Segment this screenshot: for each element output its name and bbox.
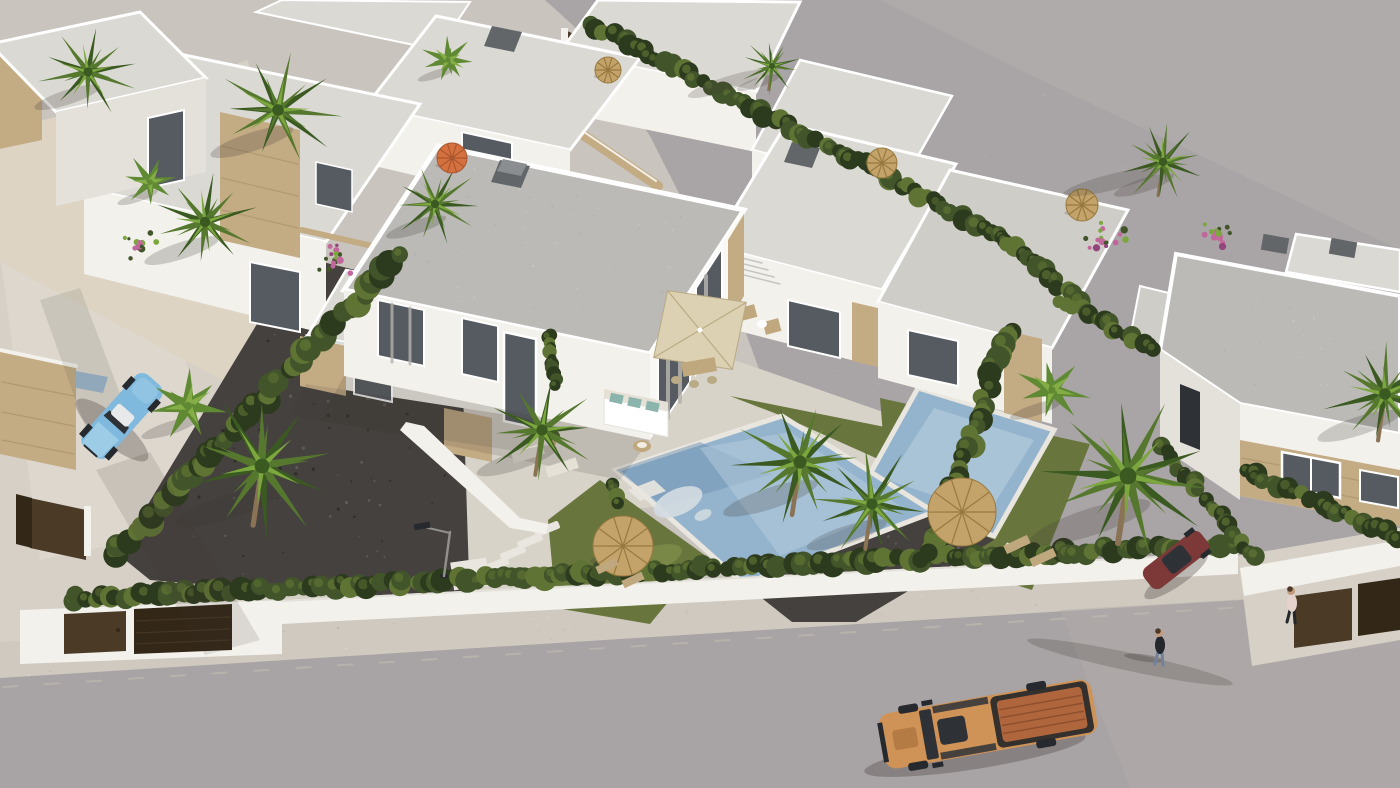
curb-joint-line	[253, 670, 269, 671]
hedge-right-garden	[1391, 533, 1399, 541]
curb-joint-line	[1134, 613, 1150, 614]
sidewalk-texture	[530, 618, 532, 620]
hedge-front-perimeter	[80, 593, 87, 600]
bougainvillea	[1093, 244, 1100, 251]
roof-texture	[1388, 355, 1390, 357]
bougainvillea	[336, 257, 343, 264]
gravel-texture	[378, 504, 381, 507]
hedge-left-boundary	[268, 372, 279, 383]
roof-texture	[1220, 322, 1222, 324]
sidewalk-texture	[564, 629, 566, 631]
sidewalk-texture	[394, 623, 395, 624]
roof-texture	[645, 286, 646, 287]
roof-texture	[533, 308, 535, 310]
gravel-texture	[242, 555, 244, 557]
roof-texture	[665, 221, 667, 223]
straw-umbrella-pool	[960, 510, 964, 514]
sidewalk-texture	[306, 651, 307, 652]
roof-texture	[473, 168, 475, 170]
sidewalk-texture	[977, 597, 978, 598]
pedestrian-gate	[64, 611, 126, 654]
gravel-pool-texture	[957, 546, 960, 549]
pedestrian-walking	[1162, 652, 1163, 665]
hedge-back-boundary	[943, 206, 951, 214]
sidewalk-texture	[568, 626, 569, 627]
gravel-texture	[274, 334, 276, 336]
roof-texture	[484, 239, 486, 241]
gravel-texture	[368, 499, 371, 502]
roof-texture	[1256, 300, 1258, 302]
roof-texture	[669, 266, 671, 268]
hedge-plot-divider	[995, 335, 1006, 346]
palm-tree	[83, 67, 92, 76]
bougainvillea	[1104, 241, 1108, 245]
roof-texture	[556, 242, 558, 244]
curb-joint-line	[1176, 610, 1192, 611]
roof-texture	[576, 196, 578, 198]
bougainvillea	[1113, 240, 1119, 246]
hedge-back-boundary	[687, 73, 695, 81]
sidewalk-texture	[724, 603, 726, 605]
roof-texture	[498, 212, 499, 213]
roof-texture	[1334, 340, 1336, 342]
curb-joint-line	[212, 672, 228, 673]
gravel-texture	[242, 573, 244, 575]
gravel-texture	[289, 395, 292, 398]
roof-texture	[457, 301, 459, 303]
bougainvillea	[128, 256, 132, 260]
gravel-texture	[282, 552, 284, 554]
palm-tree-right	[1120, 468, 1137, 485]
bougainvillea	[1219, 243, 1226, 250]
roof-texture	[1250, 359, 1251, 360]
gravel-texture	[329, 515, 332, 518]
straw-umbrella	[880, 161, 884, 165]
sidewalk-texture	[548, 617, 550, 619]
roof-texture	[467, 196, 469, 198]
roof-texture	[1301, 356, 1303, 358]
orange-pickup-truck	[937, 715, 969, 745]
orange-umbrella	[450, 156, 454, 160]
bougainvillea	[328, 244, 333, 249]
bougainvillea	[140, 245, 144, 249]
gravel-texture	[197, 496, 200, 499]
sidewalk-texture	[550, 638, 552, 640]
roof-texture	[1286, 363, 1287, 364]
roof-texture	[576, 306, 577, 307]
straw-umbrella	[606, 68, 610, 72]
gravel-texture	[431, 503, 433, 505]
dining-chair	[671, 376, 681, 384]
roof-texture	[1339, 332, 1340, 333]
sidewalk-texture	[981, 598, 982, 599]
hedge-plot-divider	[963, 427, 971, 435]
hedge-rightvilla-side	[1201, 494, 1208, 501]
sidewalk-texture	[921, 595, 923, 597]
sidewalk-texture	[467, 641, 468, 642]
roof-texture	[638, 227, 640, 229]
lot-texture	[833, 370, 835, 372]
curb-joint-line	[966, 624, 982, 625]
roof-texture	[1340, 353, 1341, 354]
roof-texture	[593, 214, 594, 215]
bougainvillea	[326, 267, 331, 272]
hedge-plot-divider	[919, 543, 937, 561]
palm-tree	[200, 217, 210, 227]
roof-texture	[575, 246, 576, 247]
hedge-front-perimeter	[735, 560, 743, 568]
hedge-front-perimeter	[1086, 546, 1093, 553]
gravel-texture	[408, 447, 410, 449]
hedge-front-perimeter	[394, 573, 403, 582]
person-at-gate	[1287, 586, 1293, 592]
hedge-front-perimeter	[556, 565, 564, 573]
roof-texture	[523, 228, 525, 230]
hedge-plot-divider	[956, 450, 964, 458]
curb-joint-line	[2, 686, 18, 687]
roof-texture	[478, 168, 479, 169]
hedge-front-perimeter	[954, 551, 961, 558]
roof-texture	[1265, 330, 1266, 331]
roof-texture	[680, 216, 682, 218]
banana-plant	[147, 179, 153, 185]
bougainvillea	[348, 270, 353, 275]
gravel-texture	[371, 478, 373, 480]
roof-texture	[1348, 369, 1349, 370]
gravel-pool-texture	[881, 542, 882, 543]
roof-texture	[1320, 384, 1322, 386]
sidewalk-texture	[28, 674, 30, 676]
banana-plant	[184, 402, 192, 410]
coffee-table-tray	[637, 442, 647, 448]
sidewalk-texture	[881, 614, 883, 616]
roof-texture	[1319, 348, 1321, 350]
roof-texture	[1371, 347, 1373, 349]
villa-window	[908, 330, 958, 386]
gravel-pool-texture	[901, 528, 902, 529]
hedge-front-perimeter	[139, 587, 148, 596]
curb-joint-line	[337, 664, 353, 665]
palm-tree	[431, 200, 439, 208]
terrace-parasol	[698, 328, 703, 333]
hedge-right-garden	[1330, 506, 1338, 514]
gravel-texture	[389, 479, 391, 481]
roof-texture	[576, 287, 578, 289]
roof-texture	[609, 267, 610, 268]
gravel-pool-texture	[895, 543, 897, 545]
hedge-back-boundary	[1050, 274, 1057, 281]
sidewalk-texture	[1191, 582, 1192, 583]
hedge-back-boundary	[596, 27, 603, 34]
villa-window	[316, 162, 352, 212]
curb-joint-line	[882, 629, 898, 630]
roof-texture	[1248, 308, 1249, 309]
straw-umbrella	[1080, 203, 1084, 207]
hedge-front-perimeter	[314, 578, 323, 587]
bougainvillea	[324, 257, 328, 261]
roof-texture	[552, 205, 554, 207]
lot-texture	[1121, 165, 1124, 168]
hedge-front-perimeter	[272, 585, 280, 593]
bougainvillea	[127, 237, 130, 240]
gravel-texture	[221, 429, 224, 432]
patio-side-table	[757, 320, 767, 328]
sidewalk-texture	[1039, 600, 1041, 602]
roof-texture	[571, 213, 572, 214]
roof-texture	[445, 301, 446, 302]
bush-pool-corner	[613, 499, 619, 505]
roof-texture	[427, 261, 429, 263]
dining-chair	[707, 376, 717, 384]
hedge-plot-divider	[984, 381, 993, 390]
bougainvillea	[148, 230, 154, 236]
lot-texture	[1093, 141, 1095, 143]
bougainvillea	[1202, 232, 1208, 238]
roof-texture	[1304, 367, 1305, 368]
gravel-pool-texture	[840, 551, 841, 552]
rightvilla-window	[1360, 470, 1398, 508]
corner-gate-left-side	[16, 494, 32, 548]
roof-texture	[672, 229, 674, 231]
hedge-right-inner	[1148, 344, 1155, 351]
orange-pickup-truck	[892, 727, 919, 751]
bush-pool-corner	[609, 484, 614, 489]
sidewalk-texture	[447, 638, 448, 639]
hedge-rightvilla-side	[1222, 518, 1230, 526]
hedge-back-boundary	[911, 190, 920, 199]
gravel-texture	[328, 427, 330, 429]
roof-texture	[460, 224, 461, 225]
roof-texture	[1346, 322, 1348, 324]
sidewalk-texture	[283, 630, 285, 632]
bougainvillea	[1104, 244, 1108, 248]
gravel-texture	[295, 466, 298, 469]
hedge-front-perimeter	[749, 557, 757, 565]
gravel-texture	[294, 472, 297, 475]
lot-texture	[1080, 401, 1082, 403]
gravel-texture	[381, 540, 383, 542]
gravel-texture	[302, 446, 305, 449]
bougainvillea	[123, 236, 127, 240]
roof-texture	[525, 211, 527, 213]
person-at-gate	[1294, 610, 1295, 623]
bougainvillea	[1088, 246, 1092, 250]
sidewalk-texture	[597, 636, 599, 638]
bougainvillea	[331, 260, 336, 265]
curb-joint-line	[798, 635, 814, 636]
curb-joint-line	[631, 645, 647, 646]
curb-joint-line	[673, 643, 689, 644]
roof-texture	[1254, 384, 1256, 386]
roof-texture	[1304, 322, 1305, 323]
gravel-texture	[337, 474, 339, 476]
roof-texture	[473, 297, 475, 299]
bougainvillea	[1122, 236, 1128, 242]
hedge-back-boundary	[825, 142, 832, 149]
roof-texture	[1289, 358, 1291, 360]
curb-joint-line	[1092, 616, 1108, 617]
hedge-back-boundary	[1008, 239, 1017, 248]
curb-joint-line	[463, 656, 479, 657]
palm-tree-garden	[793, 455, 806, 468]
palm-tree-street	[255, 459, 270, 474]
sidewalk-texture	[345, 648, 347, 650]
roof-texture	[1261, 376, 1262, 377]
right-gate	[1294, 588, 1352, 648]
roof-texture	[1313, 317, 1315, 319]
roof-texture	[1339, 335, 1340, 336]
sidewalk-texture	[49, 670, 51, 672]
lot-texture	[1085, 478, 1087, 480]
curb-joint-line	[295, 667, 311, 668]
gate-post	[84, 506, 91, 556]
banana-plant	[445, 57, 450, 62]
roof-texture	[712, 225, 714, 227]
palm-tree-lot	[1159, 158, 1167, 166]
curb-joint-line	[547, 651, 563, 652]
hedge-back-boundary	[608, 26, 617, 35]
bougainvillea	[1215, 230, 1222, 237]
roof-texture	[661, 291, 663, 293]
hedge-front-perimeter	[972, 553, 979, 560]
gravel-pool-texture	[789, 608, 790, 609]
roof-texture	[1353, 374, 1354, 375]
curb-joint-line	[1050, 618, 1066, 619]
gravel-texture	[358, 536, 360, 538]
gravel-texture	[267, 339, 270, 342]
banana-plant	[1048, 386, 1055, 393]
roof-texture	[1315, 313, 1316, 314]
bougainvillea	[317, 268, 321, 272]
hedge-front-perimeter	[1067, 547, 1076, 556]
bougainvillea	[1118, 232, 1122, 236]
roof-texture	[1289, 306, 1291, 308]
curb-joint-line	[505, 654, 521, 655]
curb-joint-line	[589, 648, 605, 649]
lot-texture	[984, 154, 986, 156]
curb-joint-line	[86, 681, 102, 682]
pedestrian-walking	[1155, 628, 1161, 634]
roof-texture	[1223, 349, 1225, 351]
roof-texture	[1292, 320, 1294, 322]
bougainvillea	[153, 239, 159, 245]
roof-texture	[414, 253, 416, 255]
gravel-texture	[373, 480, 375, 482]
roof-texture	[494, 223, 496, 225]
roof-texture	[1262, 343, 1264, 345]
roof-texture	[456, 251, 458, 253]
gravel-texture	[350, 481, 352, 483]
lot-texture	[1323, 539, 1324, 540]
gravel-pool-texture	[887, 535, 890, 538]
curb-joint-line	[170, 675, 186, 676]
roof-texture	[1303, 335, 1305, 337]
gravel-texture	[353, 515, 355, 517]
hedge-plot-divider	[975, 391, 982, 398]
hedge-front-perimeter	[254, 579, 262, 587]
curb-joint-line	[44, 683, 60, 684]
stone-cladding	[852, 302, 882, 368]
roof-texture	[532, 265, 534, 267]
hedge-front-perimeter	[286, 579, 295, 588]
palm-tree	[272, 104, 284, 116]
sidewalk-texture	[971, 590, 973, 592]
gravel-texture	[360, 461, 363, 464]
sidewalk-texture	[337, 627, 339, 629]
roof-texture	[450, 234, 451, 235]
bougainvillea	[333, 251, 338, 256]
roof-texture	[1277, 385, 1278, 386]
gate-handle	[116, 628, 120, 632]
sidewalk-texture	[1035, 604, 1037, 606]
palm-tree-garden	[866, 498, 877, 509]
lot-texture	[1055, 26, 1057, 28]
roof-texture	[1274, 324, 1275, 325]
pedestrian-walking	[1155, 636, 1165, 654]
hedge-rightvilla-side	[1248, 549, 1257, 558]
roof-texture	[1279, 329, 1281, 331]
bush-terrace-edge	[551, 381, 556, 386]
roof-texture	[1253, 331, 1254, 332]
gravel-texture	[442, 559, 443, 560]
bougainvillea	[1225, 225, 1230, 230]
hedge-right-garden	[1257, 475, 1264, 482]
hedge-front-perimeter	[707, 564, 714, 571]
sidewalk-texture	[635, 636, 636, 637]
lot-texture	[1329, 532, 1330, 533]
roof-texture	[1367, 328, 1368, 329]
lot-texture	[1044, 94, 1047, 97]
gravel-texture	[383, 556, 385, 558]
roof-texture	[1260, 342, 1261, 343]
sidewalk-texture	[1109, 586, 1110, 587]
curb-joint-line	[756, 637, 772, 638]
rightvilla-door-recess	[1180, 384, 1200, 450]
bougainvillea	[1121, 226, 1128, 233]
sidewalk-texture	[1011, 588, 1012, 589]
hedge-left-boundary	[394, 248, 401, 255]
curb-joint-line	[128, 678, 144, 679]
roof-texture	[597, 207, 599, 209]
right-garage-gate	[1358, 578, 1400, 636]
hedge-left-boundary	[300, 339, 311, 350]
gravel-texture	[377, 550, 379, 552]
bougainvillea	[1098, 228, 1102, 232]
hedge-right-garden	[1296, 487, 1302, 493]
bougainvillea	[1228, 231, 1232, 235]
aerial-render-image	[0, 0, 1400, 788]
curb-joint-line	[379, 662, 395, 663]
gravel-texture	[224, 535, 226, 537]
roof-texture	[638, 224, 640, 226]
person-at-gate	[1287, 594, 1297, 612]
roof-texture	[1251, 309, 1252, 310]
sidewalk-texture	[651, 627, 652, 628]
hedge-right-inner	[1082, 307, 1091, 316]
roof-texture	[579, 232, 581, 234]
bougainvillea	[1083, 236, 1088, 241]
roof-texture	[457, 286, 459, 288]
palm-tree-lot	[769, 63, 775, 69]
lot-texture	[1305, 100, 1307, 102]
curb-joint-line	[840, 632, 856, 633]
roof-texture	[1318, 395, 1319, 396]
straw-umbrella-lawn	[621, 544, 625, 548]
gravel-texture	[366, 555, 368, 557]
curb-joint-line	[1008, 621, 1024, 622]
hedge-rightvilla-side	[1155, 439, 1163, 447]
bougainvillea	[329, 252, 333, 256]
